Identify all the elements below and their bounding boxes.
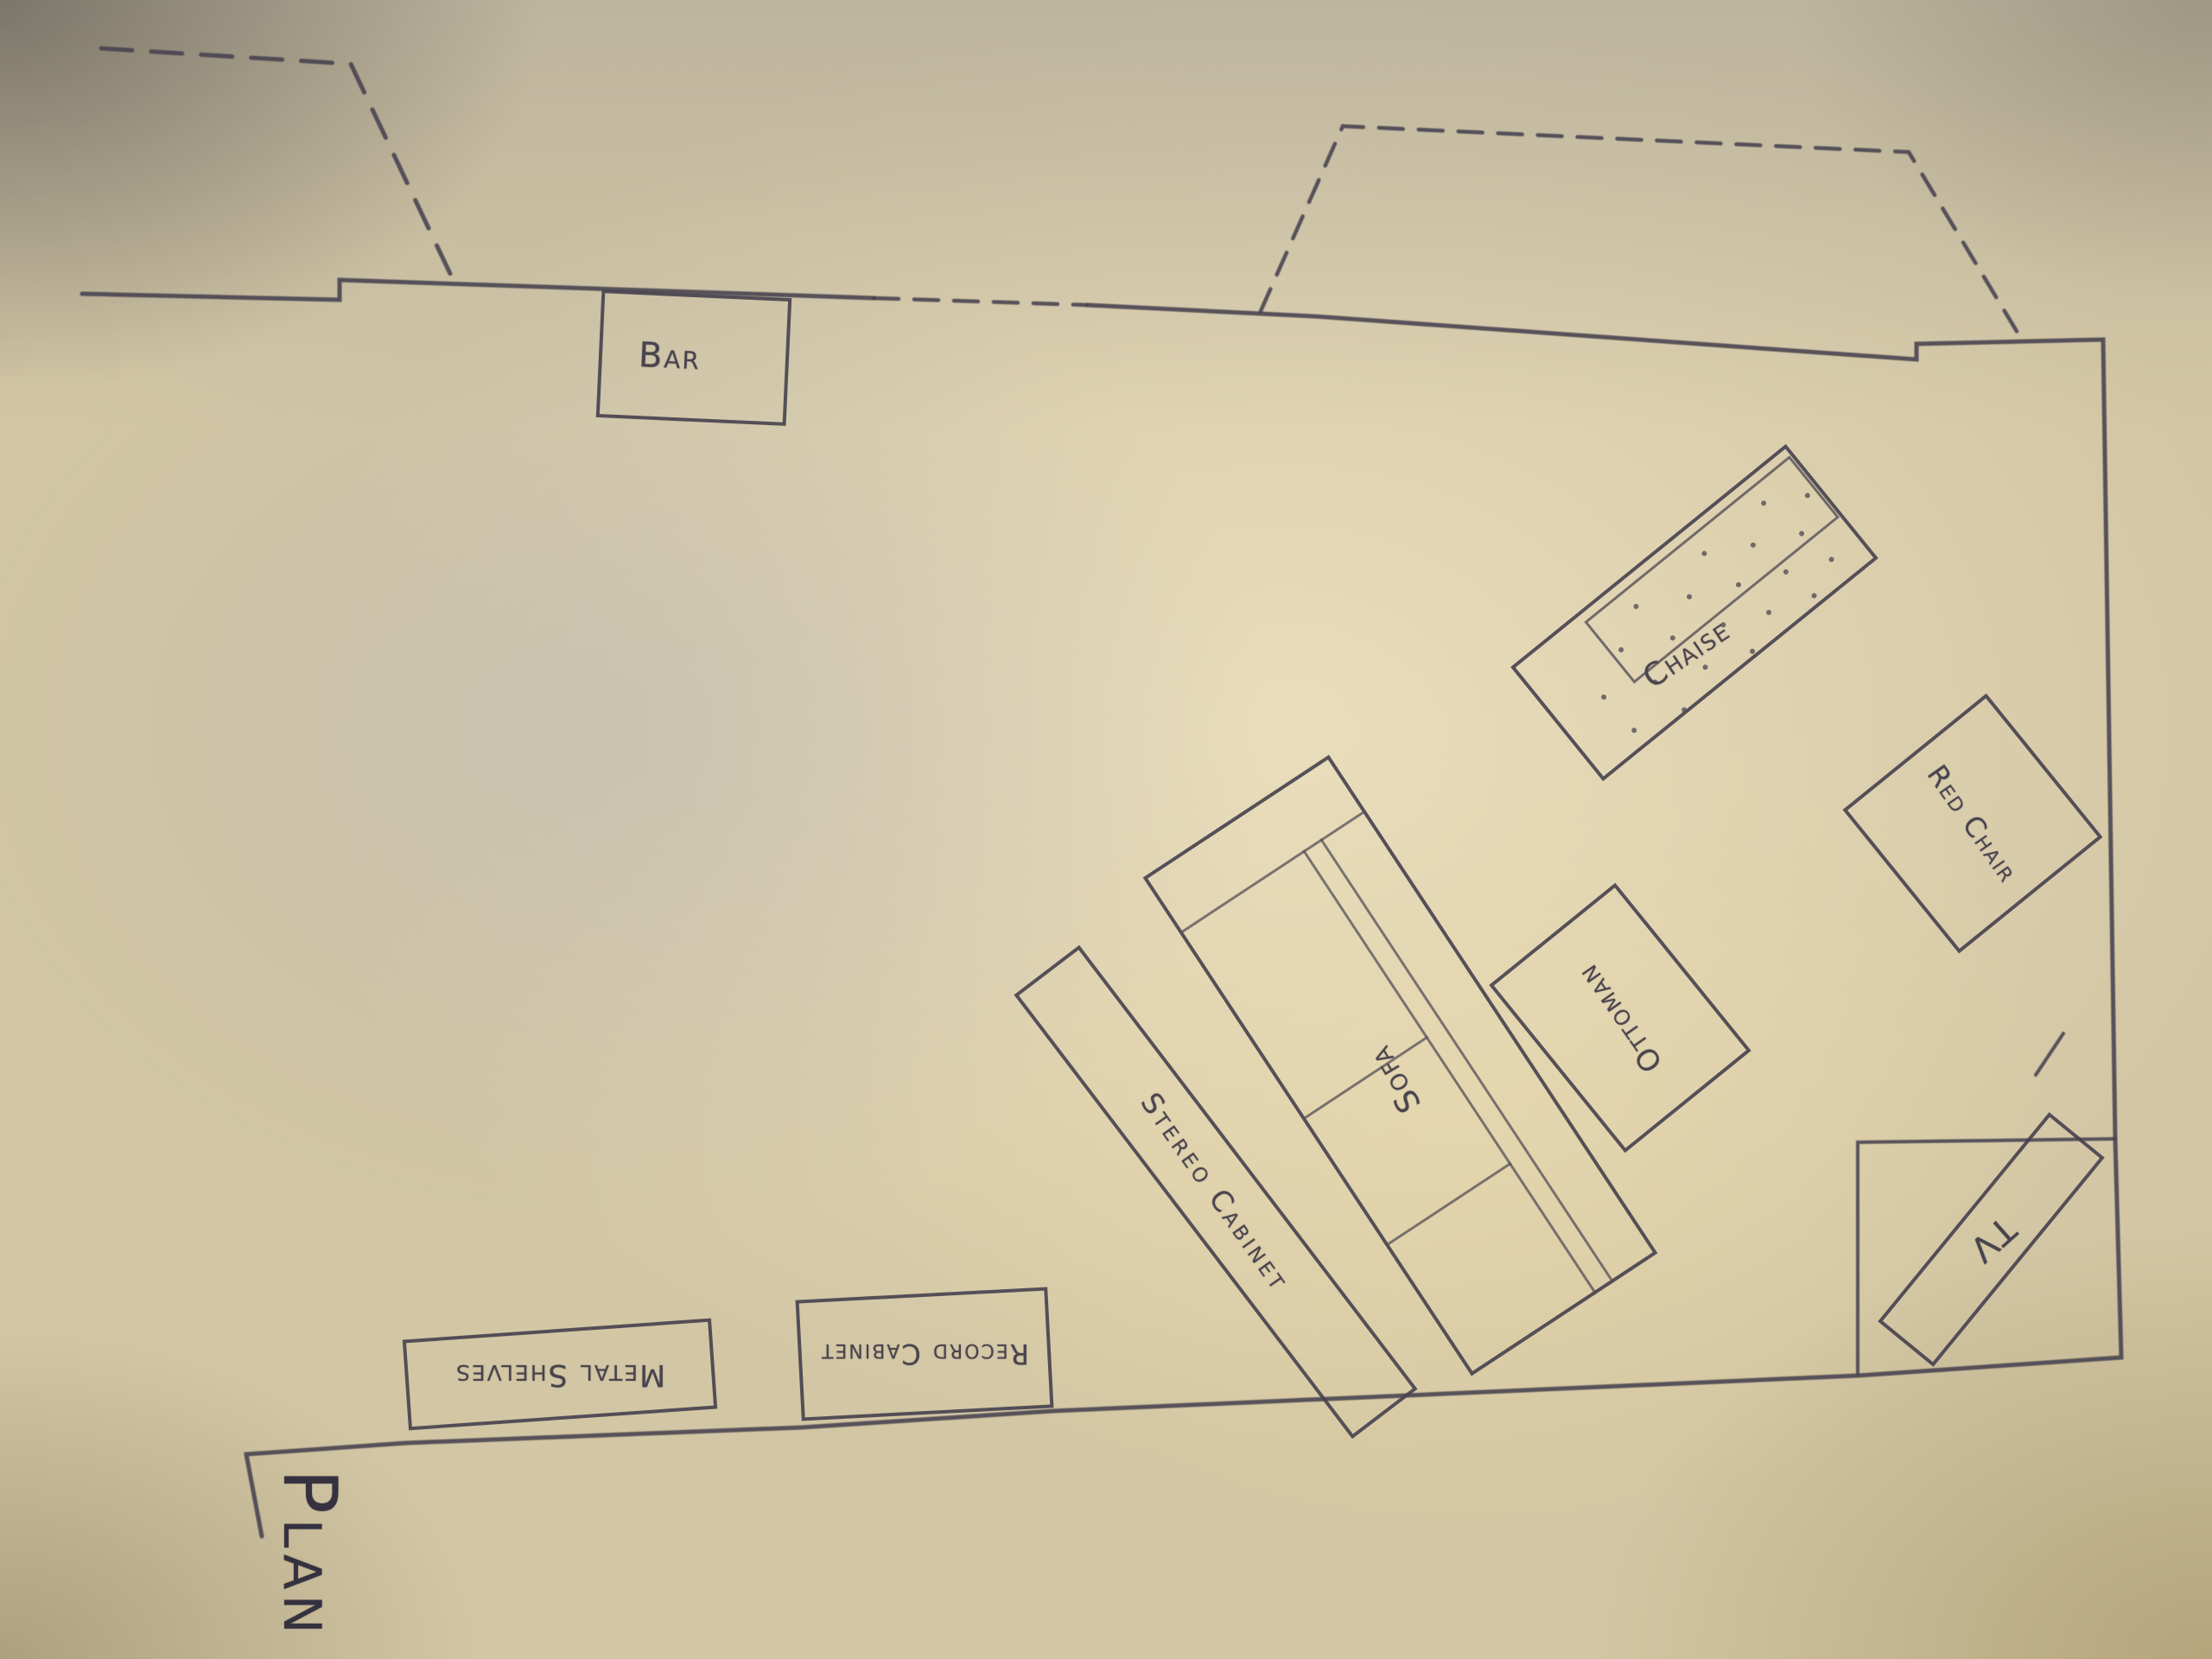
dashed-outline-top-left	[101, 48, 452, 277]
plan-title: Plan C	[266, 1469, 353, 1659]
chaise-dot	[1827, 556, 1834, 563]
sofa-label: Sofa	[1360, 1039, 1428, 1120]
metal-shelves-label: Metal Shelves	[454, 1357, 665, 1392]
tv-label: TV	[1960, 1209, 2022, 1270]
ottoman-label: Ottoman	[1570, 957, 1669, 1079]
wall-tick-mark	[2036, 1033, 2063, 1075]
record-cabinet-box: Record Cabinet	[796, 1287, 1054, 1421]
bar-label: Bar	[638, 335, 702, 378]
sofa-cushion-divider-2	[1388, 1162, 1512, 1245]
record-cabinet-label: Record Cabinet	[820, 1338, 1029, 1370]
wall-top-dashed-gap	[874, 298, 1087, 305]
chaise-dot	[1630, 727, 1637, 734]
chaise-dot	[1810, 592, 1817, 599]
bar-box: Bar	[596, 289, 791, 426]
chaise-dot	[1765, 609, 1772, 616]
chaise-dot	[1749, 648, 1756, 655]
dashed-outline-top-right	[1261, 126, 2023, 341]
red-chair-label: Red Chair	[1920, 759, 2024, 888]
floor-plan-photo: Bar Chaise Red Chair Ottoman Sofa Stereo…	[0, 0, 2212, 1659]
chaise-dot	[1783, 569, 1789, 575]
chaise-dot	[1701, 664, 1708, 671]
chaise-dot	[1600, 694, 1607, 701]
chaise-dot	[1681, 706, 1688, 713]
